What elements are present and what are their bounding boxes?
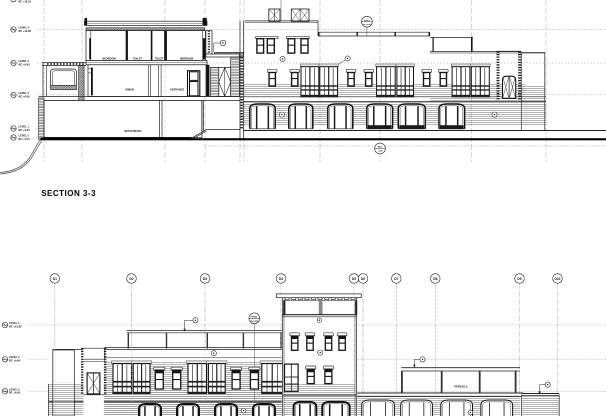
svg-text:D4: D4 [279,277,283,281]
svg-text:RC +16.10: RC +16.10 [19,0,32,3]
svg-text:BEDROOM: BEDROOM [180,57,193,60]
svg-text:FLOOR: FLOOR [251,321,259,323]
svg-text:RC +6.60: RC +6.60 [19,94,31,98]
svg-text:DIWAN: DIWAN [125,88,134,91]
svg-text:SECTION 3-3: SECTION 3-3 [41,189,96,198]
svg-text:D10: D10 [554,277,560,281]
svg-text:FLOOR: FLOOR [363,24,371,26]
svg-text:RDC: RDC [378,147,383,149]
svg-text:D8: D8 [433,277,437,281]
svg-text:RC +3.30: RC +3.30 [19,128,31,132]
svg-text:TOILET: TOILET [155,57,164,60]
svg-text:BEDROOM: BEDROOM [102,57,115,60]
svg-text:D7: D7 [394,277,398,281]
svg-text:ENTRANCE: ENTRANCE [170,88,184,91]
svg-text:PERGOLA: PERGOLA [454,385,467,389]
svg-text:FIRST: FIRST [251,317,258,319]
svg-text:D5: D5 [352,277,356,281]
svg-text:RC +13.80: RC +13.80 [9,324,22,328]
svg-text:FIRST: FIRST [364,20,371,22]
svg-text:RC +9.90: RC +9.90 [9,359,21,363]
svg-text:RC +9.90: RC +9.90 [19,62,31,66]
svg-text:+1.20: +1.20 [377,151,383,153]
svg-text:D2: D2 [129,277,133,281]
svg-text:D3: D3 [203,277,207,281]
svg-text:RC +6.60: RC +6.60 [9,391,21,395]
svg-text:RESTAURANT: RESTAURANT [124,130,142,133]
svg-text:D1: D1 [53,277,57,281]
svg-text:RC +13.80: RC +13.80 [19,29,32,33]
svg-text:D6: D6 [361,277,365,281]
svg-text:D9: D9 [517,277,521,281]
svg-text:TOILET: TOILET [133,57,142,60]
svg-text:RC +2.40: RC +2.40 [19,137,31,141]
